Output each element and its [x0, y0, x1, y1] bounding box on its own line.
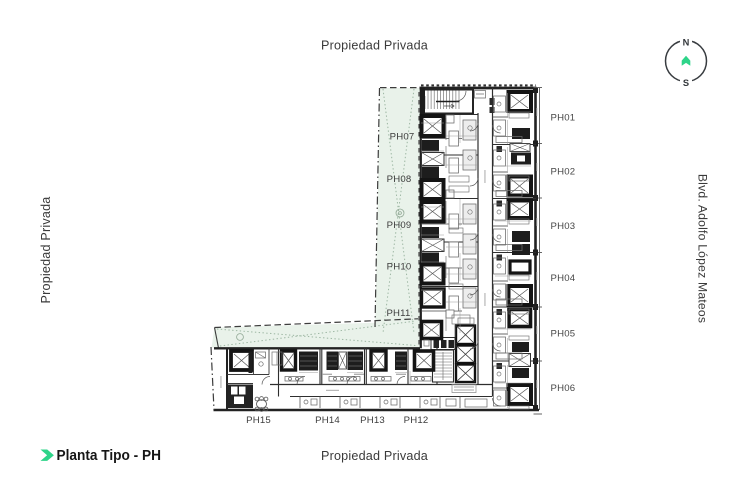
svg-text:Blvd. Adolfo López Mateos: Blvd. Adolfo López Mateos: [696, 174, 710, 323]
svg-text:PH03: PH03: [551, 221, 576, 232]
svg-text:PH09: PH09: [387, 220, 412, 231]
svg-text:PH04: PH04: [551, 273, 576, 284]
svg-text:N: N: [683, 37, 690, 47]
svg-text:Propiedad Privada: Propiedad Privada: [321, 449, 428, 463]
svg-text:PH06: PH06: [551, 383, 576, 394]
svg-text:PH02: PH02: [551, 166, 576, 177]
svg-text:S: S: [683, 78, 689, 88]
svg-text:PH13: PH13: [360, 415, 385, 426]
svg-text:PH15: PH15: [246, 415, 271, 426]
svg-text:PH08: PH08: [387, 174, 412, 185]
svg-text:Planta Tipo - PH: Planta Tipo - PH: [57, 447, 161, 464]
svg-text:PH12: PH12: [404, 415, 429, 426]
svg-text:Propiedad Privada: Propiedad Privada: [321, 38, 428, 52]
svg-text:Propiedad Privada: Propiedad Privada: [39, 196, 53, 303]
svg-text:PH14: PH14: [315, 415, 340, 426]
svg-text:PH05: PH05: [551, 329, 576, 340]
svg-text:PH07: PH07: [390, 132, 415, 143]
svg-text:PH01: PH01: [551, 113, 576, 124]
svg-text:PH11: PH11: [386, 308, 410, 319]
svg-text:PH10: PH10: [387, 262, 412, 273]
